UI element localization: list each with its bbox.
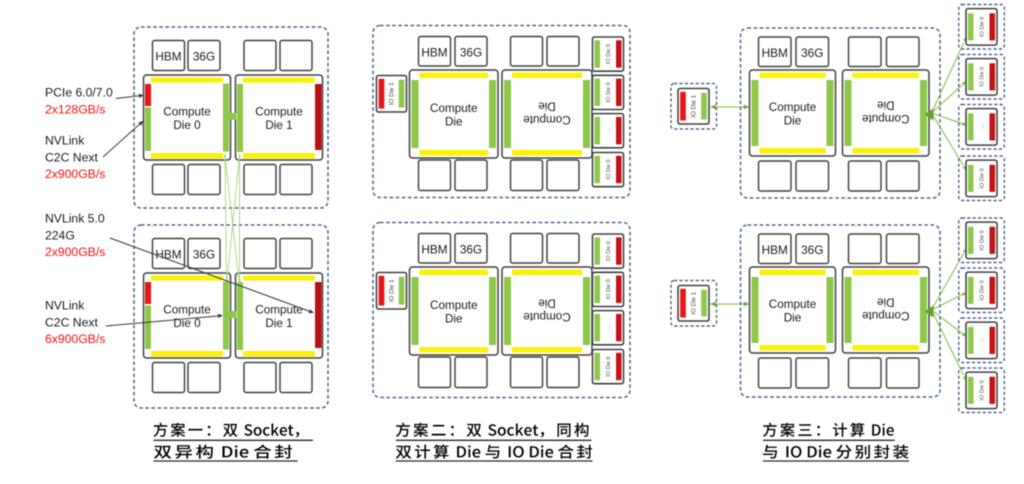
svg-text:IO Die 1: IO Die 1 [691,94,698,117]
svg-text:Compute: Compute [862,309,909,322]
svg-text:Die 0: Die 0 [173,119,201,132]
svg-text:36G: 36G [801,46,823,60]
svg-text:Die: Die [784,114,802,127]
svg-text:224G: 224G [45,228,75,242]
svg-text:Die: Die [538,297,556,310]
svg-text:6x900GB/s: 6x900GB/s [45,332,105,346]
svg-text:Die: Die [538,100,556,113]
svg-text:IO Die 0: IO Die 0 [606,279,612,299]
svg-text:Compute: Compute [769,298,816,311]
svg-text:Compute: Compute [255,303,302,316]
svg-text:36G: 36G [193,248,215,262]
svg-text:...: ... [606,128,612,133]
svg-text:IO Die 0: IO Die 0 [980,168,986,188]
svg-text:...: ... [980,338,986,343]
svg-text:IO Die 0: IO Die 0 [980,280,986,300]
svg-text:C2C Next: C2C Next [45,315,98,329]
svg-text:Die: Die [784,311,802,324]
svg-text:36G: 36G [193,50,215,64]
svg-text:Compute: Compute [523,310,570,323]
svg-text:Die: Die [445,115,463,128]
svg-text:IO Die 0: IO Die 0 [606,82,612,102]
svg-text:IO Die 0: IO Die 0 [606,357,612,377]
svg-text:36G: 36G [460,242,482,256]
svg-text:IO Die 0: IO Die 0 [980,230,986,250]
svg-text:IO Die 1: IO Die 1 [389,279,396,302]
svg-text:Compute: Compute [862,112,909,125]
svg-text:NVLink: NVLink [45,299,85,313]
svg-text:Die: Die [445,312,463,325]
svg-text:Compute: Compute [430,102,477,115]
svg-text:IO Die 0: IO Die 0 [606,241,612,261]
svg-text:Compute: Compute [769,101,816,114]
svg-text:NVLink: NVLink [45,134,85,148]
svg-text:Die: Die [877,296,895,309]
svg-text:36G: 36G [801,243,823,257]
svg-text:IO Die 0: IO Die 0 [980,380,986,400]
svg-text:...: ... [980,124,986,129]
svg-text:Compute: Compute [163,105,210,118]
svg-text:HBM: HBM [421,242,447,256]
svg-text:...: ... [606,325,612,330]
svg-text:36G: 36G [460,45,482,59]
svg-text:HBM: HBM [421,45,447,59]
svg-text:C2C Next: C2C Next [45,150,98,164]
svg-text:2x900GB/s: 2x900GB/s [45,245,105,259]
svg-text:HBM: HBM [762,243,788,257]
svg-text:Compute: Compute [523,113,570,126]
svg-text:IO Die 1: IO Die 1 [389,82,396,105]
svg-text:Die 1: Die 1 [265,317,292,330]
svg-text:HBM: HBM [155,50,181,64]
svg-text:IO Die 0: IO Die 0 [980,67,986,87]
svg-text:2x900GB/s: 2x900GB/s [45,167,105,181]
svg-text:Die: Die [877,99,895,112]
svg-text:IO Die 0: IO Die 0 [980,17,986,37]
svg-text:PCIe 6.0/7.0: PCIe 6.0/7.0 [45,86,113,100]
svg-text:Compute: Compute [255,105,302,118]
svg-text:Die 1: Die 1 [265,119,292,132]
svg-text:2x128GB/s: 2x128GB/s [45,102,105,116]
svg-text:IO Die 0: IO Die 0 [606,160,612,180]
svg-text:IO Die 0: IO Die 0 [606,44,612,64]
svg-text:IO Die 1: IO Die 1 [691,291,698,314]
svg-text:HBM: HBM [762,46,788,60]
svg-text:Compute: Compute [430,299,477,312]
svg-text:Compute: Compute [163,303,210,316]
svg-text:NVLink 5.0: NVLink 5.0 [45,212,105,226]
